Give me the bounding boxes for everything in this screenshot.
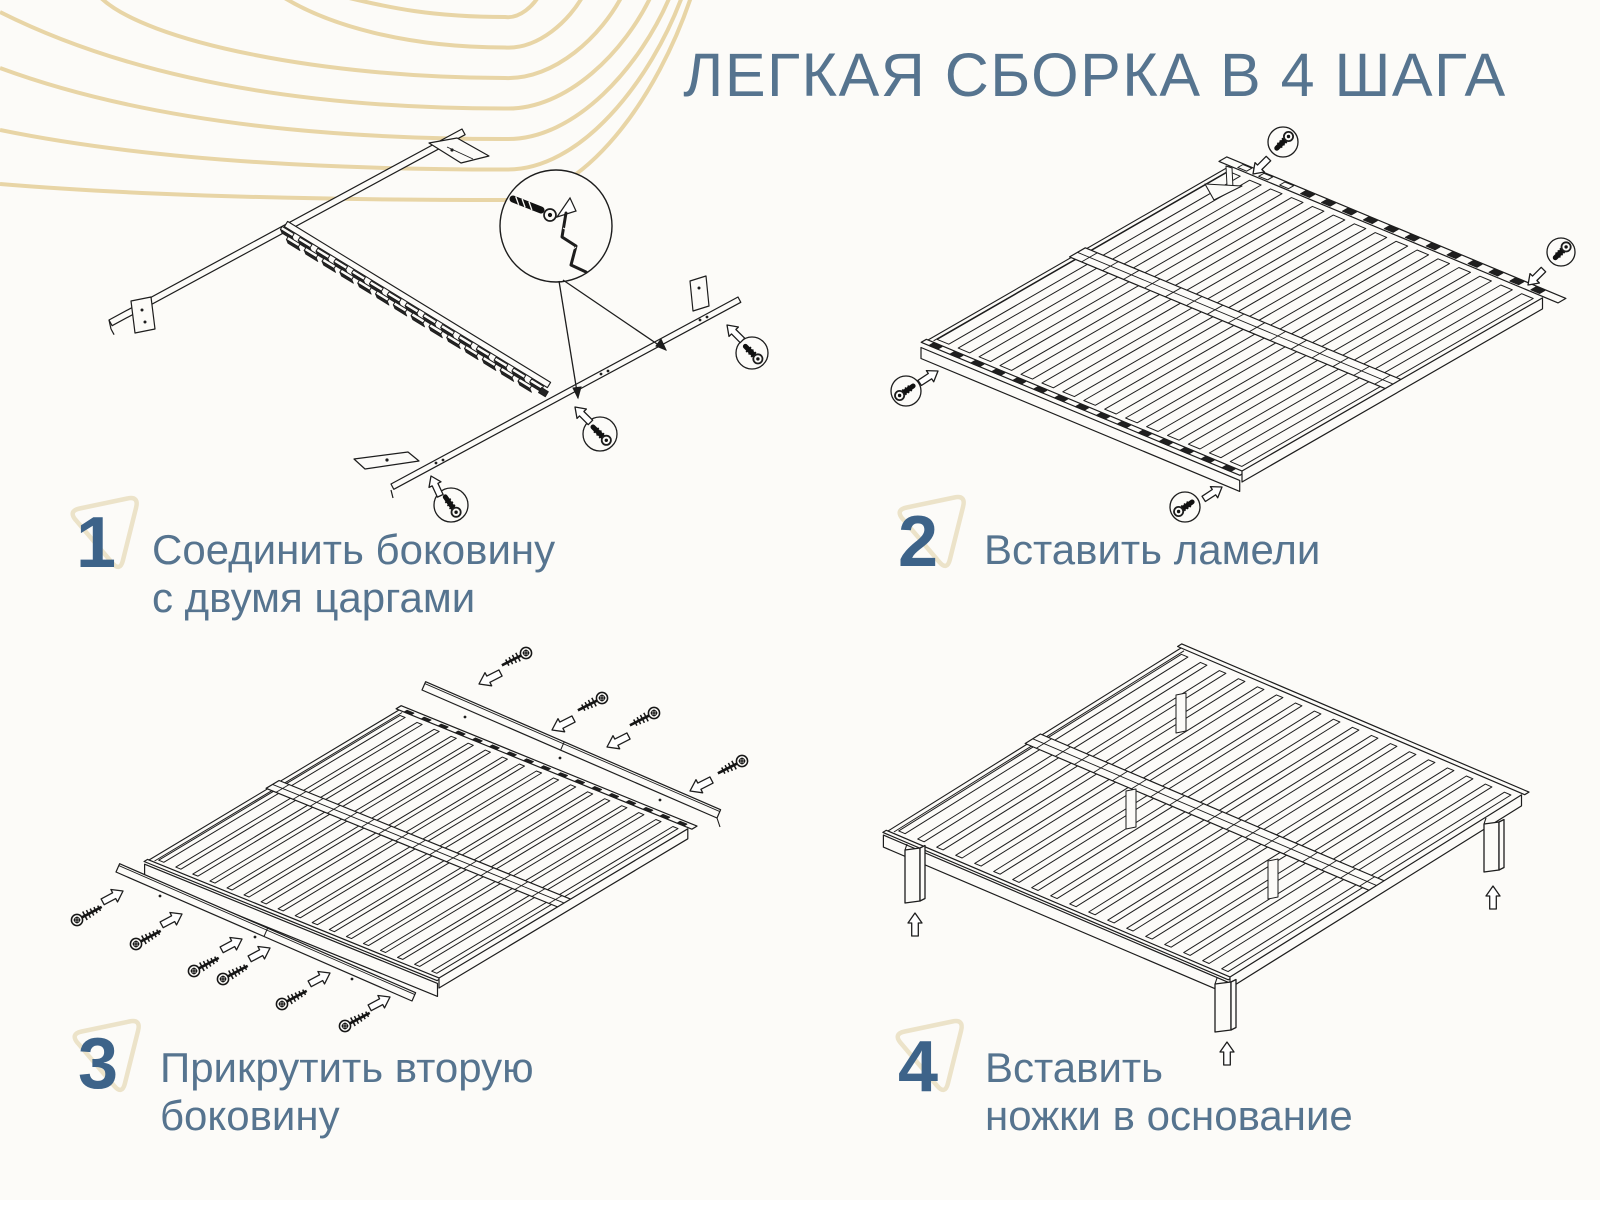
svg-text:Прикрутить вторую: Прикрутить вторую xyxy=(160,1044,534,1091)
svg-text:4: 4 xyxy=(898,1027,938,1107)
svg-text:боковину: боковину xyxy=(160,1092,340,1139)
svg-text:с двумя царгами: с двумя царгами xyxy=(152,574,475,621)
svg-text:3: 3 xyxy=(78,1024,118,1104)
svg-text:2: 2 xyxy=(898,502,938,582)
svg-text:ЛЕГКАЯ СБОРКА В 4 ШАГА: ЛЕГКАЯ СБОРКА В 4 ШАГА xyxy=(683,41,1506,109)
svg-text:1: 1 xyxy=(76,503,116,583)
svg-text:Соединить боковину: Соединить боковину xyxy=(152,526,555,573)
svg-text:Вставить ламели: Вставить ламели xyxy=(984,526,1320,573)
svg-text:ножки в основание: ножки в основание xyxy=(985,1092,1353,1139)
svg-text:Вставить: Вставить xyxy=(985,1044,1163,1091)
